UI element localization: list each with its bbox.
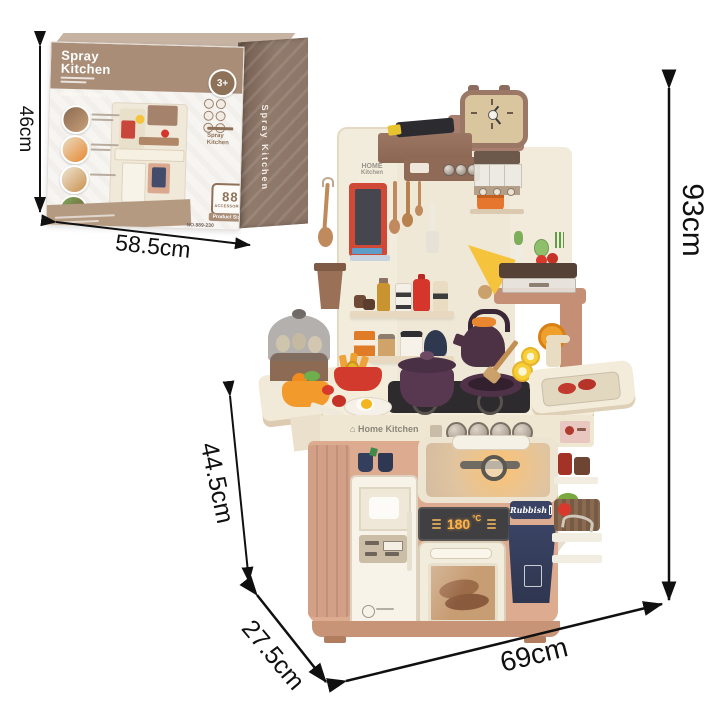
- bracket-shelf: [552, 555, 602, 563]
- rubbish-sign: Rubbish: [510, 501, 552, 519]
- scale-base: [502, 278, 576, 293]
- dispenser-knob-strip: [474, 186, 520, 195]
- item-number: NO.889-230: [186, 222, 213, 229]
- shelf-board: [350, 311, 454, 318]
- product-listing-image: Spray Kitchen Spray Kitchen Modern Kitch…: [0, 0, 720, 720]
- dimension-label-box-width: 58.5cm: [102, 227, 204, 265]
- control-knob: [443, 164, 455, 176]
- accessories-badge: 88 ACCESSORIES: [211, 183, 245, 216]
- faucet: [546, 341, 561, 367]
- blue-book: [352, 248, 382, 254]
- wooden-spoon-head: [318, 227, 333, 247]
- tomato-wedge: [322, 385, 334, 395]
- fridge-control-panel: [359, 535, 407, 563]
- slat-panel: [308, 445, 350, 617]
- fridge-handle: [407, 511, 412, 571]
- house-icon: ⌂: [350, 424, 355, 434]
- spoon-icon: [402, 213, 413, 227]
- spatula-icon: [426, 231, 439, 253]
- trash-icon: [549, 505, 552, 515]
- control-knob: [455, 164, 467, 176]
- oven-display: 180 °C: [418, 507, 510, 541]
- bracket-shelf: [552, 533, 602, 542]
- box-title: Spray Kitchen: [61, 49, 111, 76]
- cream-bottle: [433, 281, 448, 312]
- spice-shaker: [395, 283, 412, 314]
- spoon-icon: [415, 205, 423, 216]
- toy-kitchen: HOME Kitchen: [262, 85, 644, 651]
- adjuster-knob: [481, 455, 507, 481]
- egg-yolk: [361, 399, 372, 409]
- lemon-slice: [521, 347, 540, 366]
- dimension-label-box-height: 46cm: [2, 106, 48, 152]
- brand-logo-badge: [362, 605, 375, 618]
- dimension-label-counter-height: 44.5cm: [193, 434, 242, 532]
- pot-shelf: [470, 209, 524, 214]
- display-unit: °C: [472, 514, 481, 523]
- toy-cup: [358, 453, 373, 472]
- kitchen-foot: [324, 636, 346, 643]
- bread-bun: [478, 285, 492, 299]
- veg-leek-top: [514, 231, 523, 245]
- kitchen-base: [312, 621, 560, 637]
- recipe-card: [560, 421, 590, 443]
- pot-lid-knob: [420, 351, 434, 360]
- box-tagline-bar: [60, 81, 86, 84]
- utensil-cup-rim: [314, 263, 346, 271]
- red-jar: [558, 453, 572, 475]
- red-bowl: [334, 367, 382, 391]
- counter-brand: ⌂ Home Kitchen: [350, 424, 418, 434]
- veg-leek: [515, 243, 522, 261]
- clock-center: [488, 110, 498, 120]
- spoon-icon: [389, 219, 400, 234]
- scale-top: [499, 263, 577, 278]
- box-brand-small: SprayKitchen: [207, 133, 229, 148]
- kettle-lid: [472, 317, 496, 327]
- toy-cup: [378, 453, 393, 472]
- display-icons-right: [487, 519, 496, 529]
- mini-shelf: [554, 477, 598, 484]
- ketchup-bottle: [413, 279, 430, 312]
- dispenser-body: [474, 164, 522, 188]
- box-tagline-bar: [61, 77, 95, 80]
- fridge-door: [350, 475, 418, 631]
- flower-bowl: [282, 381, 330, 407]
- brown-jar: [574, 457, 590, 475]
- box-front-face: Spray Kitchen Modern Kitchen: [45, 41, 244, 230]
- veg-carrot-greens: [553, 232, 564, 248]
- oven-door: [418, 541, 506, 627]
- box-subtitle: Modern Kitchen: [60, 92, 105, 99]
- shelf-bracket: [558, 542, 566, 552]
- display-temperature: 180: [447, 516, 470, 532]
- wooden-spoon-handle: [322, 183, 329, 231]
- blackboard: [349, 183, 387, 257]
- egg-cooker-dome: [268, 315, 330, 361]
- cooking-pot: [400, 367, 454, 407]
- oven-glass: [428, 563, 498, 623]
- wall-sign: HOME Kitchen: [355, 163, 389, 177]
- lettuce-leaf: [304, 371, 320, 381]
- bin-emblem: [524, 565, 542, 587]
- dimension-label-toy-height: 93cm: [662, 188, 720, 252]
- fridge-window: [359, 487, 411, 531]
- product-size-ribbon: Product Size: [209, 213, 245, 222]
- display-icons-left: [432, 519, 441, 529]
- oven-window-frame: [418, 437, 558, 503]
- control-sticker: [410, 163, 429, 173]
- oven-window-handle: [452, 435, 530, 450]
- oven-handle: [430, 548, 492, 559]
- box-bottom-band: [45, 199, 191, 231]
- chocolate: [363, 299, 375, 310]
- brush-tip: [387, 124, 401, 136]
- rubbish-bin: [508, 525, 556, 603]
- chalk-tray: [350, 255, 390, 261]
- dispenser-top: [474, 151, 520, 164]
- mustard-bottle: [377, 283, 390, 312]
